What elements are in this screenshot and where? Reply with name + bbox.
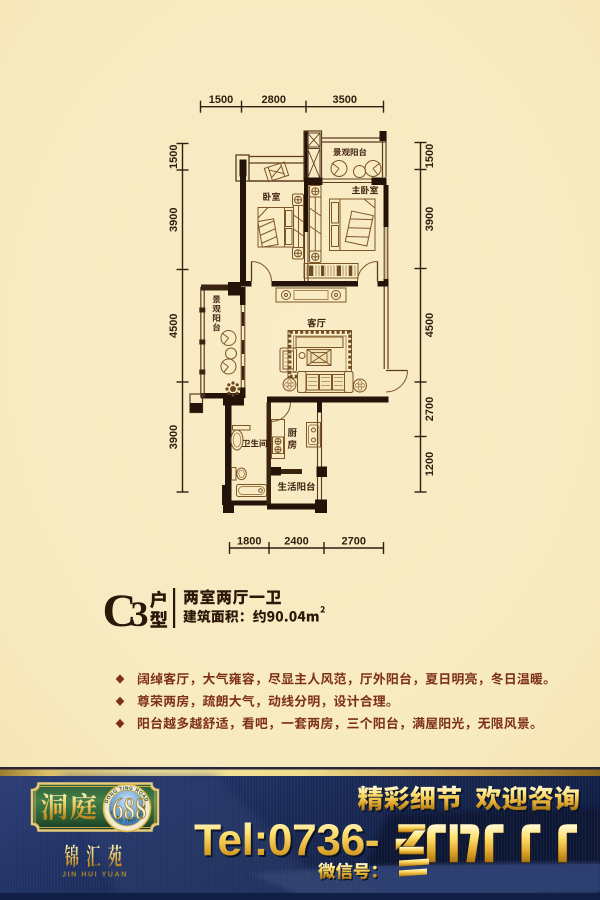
svg-text:4500: 4500 <box>168 314 180 338</box>
svg-text:1500: 1500 <box>168 145 180 169</box>
svg-text:JIN HUI YUAN: JIN HUI YUAN <box>62 872 128 879</box>
svg-text:1500: 1500 <box>424 144 436 168</box>
svg-text:3900: 3900 <box>168 425 180 449</box>
svg-text:2800: 2800 <box>262 94 286 106</box>
svg-text:3: 3 <box>131 594 149 634</box>
svg-text:4500: 4500 <box>424 313 436 337</box>
svg-text:1800: 1800 <box>237 536 261 548</box>
svg-text:1200: 1200 <box>424 452 436 476</box>
svg-text:2700: 2700 <box>342 536 366 548</box>
svg-text:3900: 3900 <box>424 207 436 231</box>
svg-text:2400: 2400 <box>284 536 308 548</box>
svg-text:3900: 3900 <box>168 208 180 232</box>
svg-text:3500: 3500 <box>333 94 357 106</box>
svg-text:1500: 1500 <box>209 94 233 106</box>
svg-text:Tel:0736-: Tel:0736- <box>194 816 379 865</box>
svg-text:2700: 2700 <box>424 397 436 421</box>
